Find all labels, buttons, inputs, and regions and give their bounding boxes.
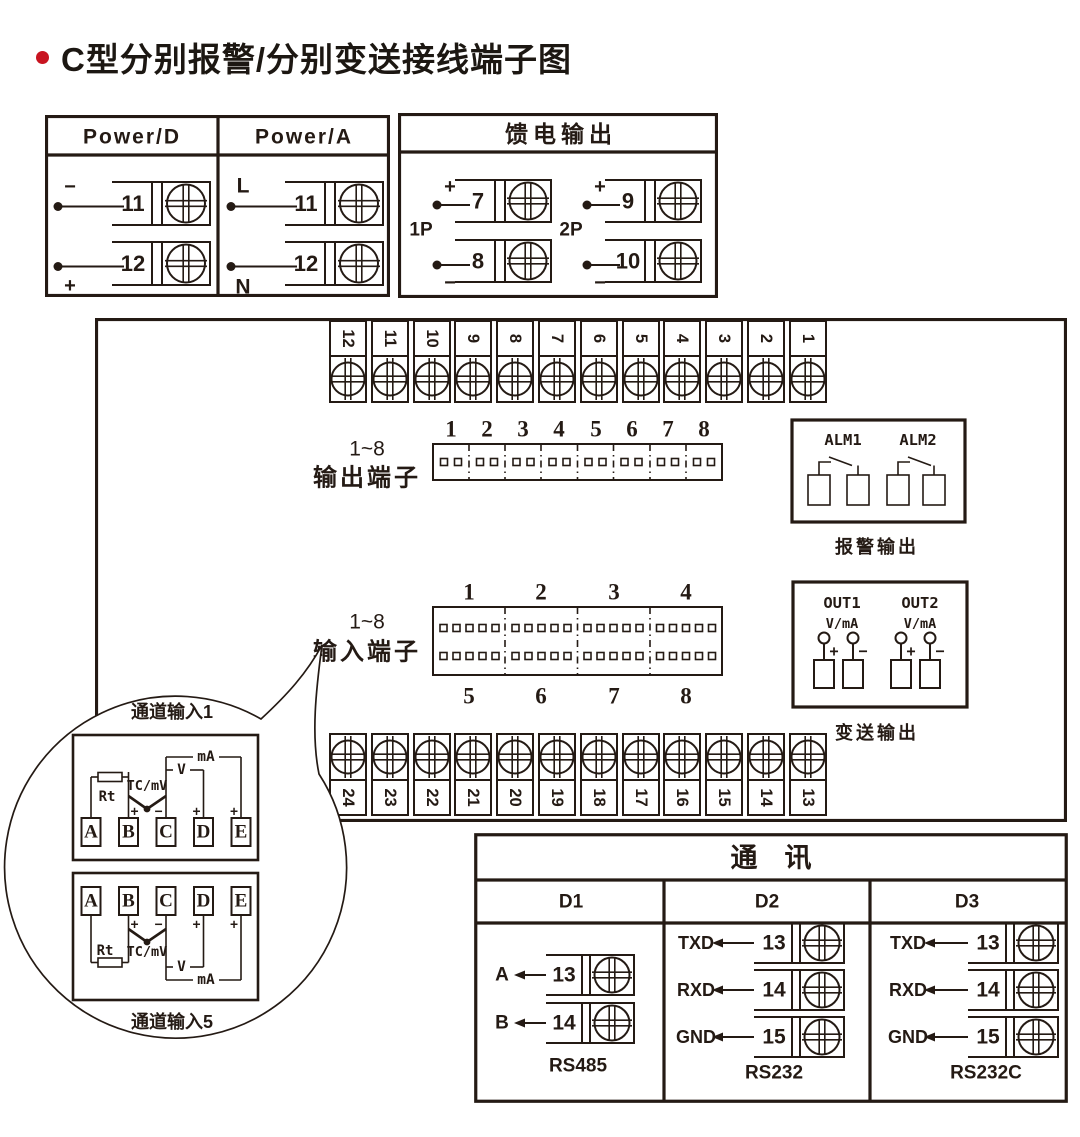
svg-text:Rt: Rt <box>99 789 116 805</box>
lead-dot <box>227 262 236 271</box>
svg-text:TXD: TXD <box>678 933 714 953</box>
comm-table: 通 讯 D1 D2 D3 13 A 14 B RS485 13 TXD 14 <box>474 833 1068 1103</box>
svg-text:13: 13 <box>799 788 817 806</box>
feed-terminal-10: 10 − <box>583 240 702 294</box>
svg-text:mA: mA <box>197 972 215 988</box>
svg-text:13: 13 <box>976 932 999 955</box>
svg-text:E: E <box>235 822 248 843</box>
svg-text:14: 14 <box>757 788 775 807</box>
feed-terminal-9: 9 + <box>583 176 702 222</box>
svg-text:12: 12 <box>339 329 357 347</box>
power-a-header: Power/A <box>255 126 353 149</box>
svg-text:GND: GND <box>676 1027 716 1047</box>
svg-text:RXD: RXD <box>677 980 715 1000</box>
feed-terminal-7: 7 + <box>433 176 552 222</box>
svg-text:9: 9 <box>464 334 482 343</box>
svg-text:C: C <box>159 891 173 912</box>
feed-output-panel: 馈电输出 1P 7 + 8 − 2P 9 + 10 <box>398 113 718 298</box>
svg-text:4: 4 <box>553 417 565 442</box>
svg-text:+: + <box>829 642 838 660</box>
lead-dot <box>54 262 63 271</box>
rs232-caption: RS232 <box>745 1063 803 1084</box>
svg-text:13: 13 <box>762 932 785 955</box>
feed-terminal-8: 8 − <box>433 240 552 294</box>
svg-text:−: − <box>155 918 163 933</box>
svg-text:5: 5 <box>590 417 602 442</box>
wiring-diagram-page: C型分别报警/分别变送接线端子图 Power/D Power/A 11 − 12… <box>0 0 1080 1137</box>
svg-text:A: A <box>495 965 509 986</box>
svg-text:18: 18 <box>590 788 608 806</box>
svg-text:15: 15 <box>976 1026 1000 1049</box>
alm2-label: ALM2 <box>899 431 936 449</box>
transmit-output-panel: OUT1 OUT2 V/mA V/mA + − + − 变送输出 <box>793 582 967 743</box>
svg-text:8: 8 <box>472 249 484 274</box>
power-d-terminal-12: 12 + <box>54 242 211 297</box>
rs232c-section: 13 TXD 14 RXD 15 GND RS232C <box>888 923 1058 1084</box>
svg-text:7: 7 <box>548 334 566 343</box>
channel1-title: 通道输入1 <box>131 701 213 722</box>
lead-dot <box>433 261 442 270</box>
svg-text:TXD: TXD <box>890 933 926 953</box>
svg-text:2: 2 <box>481 417 493 442</box>
svg-text:7: 7 <box>608 684 620 709</box>
svg-text:−: − <box>858 642 867 660</box>
ring-terminal <box>819 633 830 644</box>
top-terminal-strip: 12 11 10 9 8 7 6 5 4 3 2 1 <box>330 321 826 402</box>
svg-text:−: − <box>444 272 456 294</box>
svg-text:+: + <box>193 918 201 933</box>
alm2-relay-contact <box>887 457 945 505</box>
comm-header: 通 讯 <box>731 843 812 873</box>
page-title: C型分别报警/分别变送接线端子图 <box>61 33 572 81</box>
svg-text:6: 6 <box>626 417 638 442</box>
alarm-caption: 报警输出 <box>835 536 919 557</box>
ring-terminal <box>925 633 936 644</box>
lead-dot <box>227 202 236 211</box>
svg-text:C: C <box>159 822 173 843</box>
lead-dot <box>54 202 63 211</box>
svg-text:GND: GND <box>888 1027 928 1047</box>
svg-text:3: 3 <box>715 334 733 343</box>
arrow-left-icon <box>514 1019 525 1028</box>
svg-text:+: + <box>906 642 915 660</box>
svg-text:−: − <box>64 176 76 198</box>
svg-text:20: 20 <box>506 788 524 806</box>
svg-text:mA: mA <box>197 749 215 765</box>
rs232c-caption: RS232C <box>950 1063 1022 1084</box>
svg-text:17: 17 <box>632 788 650 806</box>
power-a-terminal-11: 11 L <box>227 175 384 226</box>
feed-header: 馈电输出 <box>505 121 617 147</box>
power-a-terminal-12: 12 N <box>227 242 384 297</box>
page-title-row: C型分别报警/分别变送接线端子图 <box>36 33 572 81</box>
output-terminal-block: 1~8 输出端子 1 2 3 4 5 6 7 8 <box>313 417 722 492</box>
svg-text:15: 15 <box>762 1026 786 1049</box>
svg-text:3: 3 <box>517 417 529 442</box>
svg-text:8: 8 <box>680 684 692 709</box>
svg-text:V: V <box>177 959 186 975</box>
power-d-header: Power/D <box>83 126 181 149</box>
svg-text:E: E <box>235 891 248 912</box>
power-d-terminal-11: 11 − <box>54 176 211 225</box>
svg-text:11: 11 <box>121 191 144 216</box>
alm1-relay-contact <box>808 457 869 505</box>
svg-text:V/mA: V/mA <box>826 616 859 632</box>
svg-text:B: B <box>122 822 135 843</box>
svg-text:B: B <box>495 1013 509 1034</box>
svg-text:6: 6 <box>535 684 547 709</box>
svg-text:B: B <box>122 891 135 912</box>
svg-text:输出端子: 输出端子 <box>313 464 421 492</box>
col-d3-header: D3 <box>955 892 979 913</box>
rs232-section: 13 TXD 14 RXD 15 GND RS232 <box>676 923 844 1084</box>
svg-text:15: 15 <box>715 788 733 806</box>
svg-text:2: 2 <box>535 580 547 605</box>
svg-text:7: 7 <box>472 189 484 214</box>
power-panel: Power/D Power/A 11 − 12 + 11 L 12 <box>45 115 390 297</box>
svg-text:+: + <box>230 918 238 933</box>
svg-text:16: 16 <box>673 788 691 806</box>
svg-text:V: V <box>177 762 186 778</box>
svg-text:1: 1 <box>463 580 475 605</box>
svg-text:6: 6 <box>590 334 608 343</box>
svg-text:14: 14 <box>976 979 1000 1002</box>
svg-text:2: 2 <box>757 334 775 343</box>
svg-text:1: 1 <box>799 334 817 343</box>
svg-text:1: 1 <box>445 417 457 442</box>
svg-text:L: L <box>237 175 250 198</box>
svg-text:14: 14 <box>552 1012 576 1035</box>
svg-text:Rt: Rt <box>97 943 114 959</box>
svg-text:D: D <box>197 822 211 843</box>
svg-text:7: 7 <box>662 417 674 442</box>
svg-text:D: D <box>197 891 211 912</box>
svg-text:12: 12 <box>294 251 318 276</box>
svg-text:TC/mV: TC/mV <box>127 944 168 960</box>
svg-text:V/mA: V/mA <box>904 616 937 632</box>
lead-dot <box>583 261 592 270</box>
ring-terminal <box>896 633 907 644</box>
svg-text:3: 3 <box>608 580 620 605</box>
svg-text:A: A <box>84 822 98 843</box>
svg-text:14: 14 <box>762 979 786 1002</box>
channel5-title: 通道输入5 <box>131 1011 213 1032</box>
svg-text:10: 10 <box>423 329 441 347</box>
col-d2-header: D2 <box>755 892 779 913</box>
out2-label: OUT2 <box>901 594 938 612</box>
svg-text:+: + <box>594 176 606 198</box>
svg-text:13: 13 <box>552 964 575 987</box>
svg-text:+: + <box>444 176 456 198</box>
svg-text:8: 8 <box>698 417 710 442</box>
svg-text:RXD: RXD <box>889 980 927 1000</box>
svg-text:+: + <box>64 275 76 297</box>
svg-text:19: 19 <box>548 788 566 806</box>
group-1p-label: 1P <box>409 220 433 241</box>
svg-text:11: 11 <box>381 330 399 347</box>
svg-text:10: 10 <box>616 249 640 274</box>
rs485-caption: RS485 <box>549 1056 608 1077</box>
ring-terminal <box>848 633 859 644</box>
svg-text:9: 9 <box>622 189 634 214</box>
svg-text:12: 12 <box>121 251 145 276</box>
red-bullet-icon <box>36 51 49 64</box>
svg-text:5: 5 <box>632 334 650 343</box>
lead-dot <box>583 201 592 210</box>
alm1-label: ALM1 <box>824 431 861 449</box>
svg-text:1~8: 1~8 <box>349 438 385 461</box>
svg-text:4: 4 <box>680 580 692 605</box>
lead-dot <box>433 201 442 210</box>
svg-text:11: 11 <box>294 191 317 216</box>
col-d1-header: D1 <box>559 892 584 913</box>
svg-text:8: 8 <box>506 334 524 343</box>
rs485-section: 13 A 14 B RS485 <box>495 955 634 1077</box>
group-2p-label: 2P <box>559 220 583 241</box>
arrow-left-icon <box>514 971 525 980</box>
svg-text:−: − <box>594 272 606 294</box>
transmit-caption: 变送输出 <box>835 722 919 743</box>
svg-text:TC/mV: TC/mV <box>127 778 168 794</box>
junction-dot <box>144 806 151 813</box>
alarm-output-panel: ALM1 ALM2 报警输出 <box>792 420 965 557</box>
svg-text:4: 4 <box>673 334 691 344</box>
out1-label: OUT1 <box>823 594 860 612</box>
svg-text:−: − <box>935 642 944 660</box>
svg-text:A: A <box>84 891 98 912</box>
channel-callout: 通道输入1 Rt mA V TC/mV + − + + A B <box>0 630 470 1110</box>
svg-text:N: N <box>235 276 250 298</box>
